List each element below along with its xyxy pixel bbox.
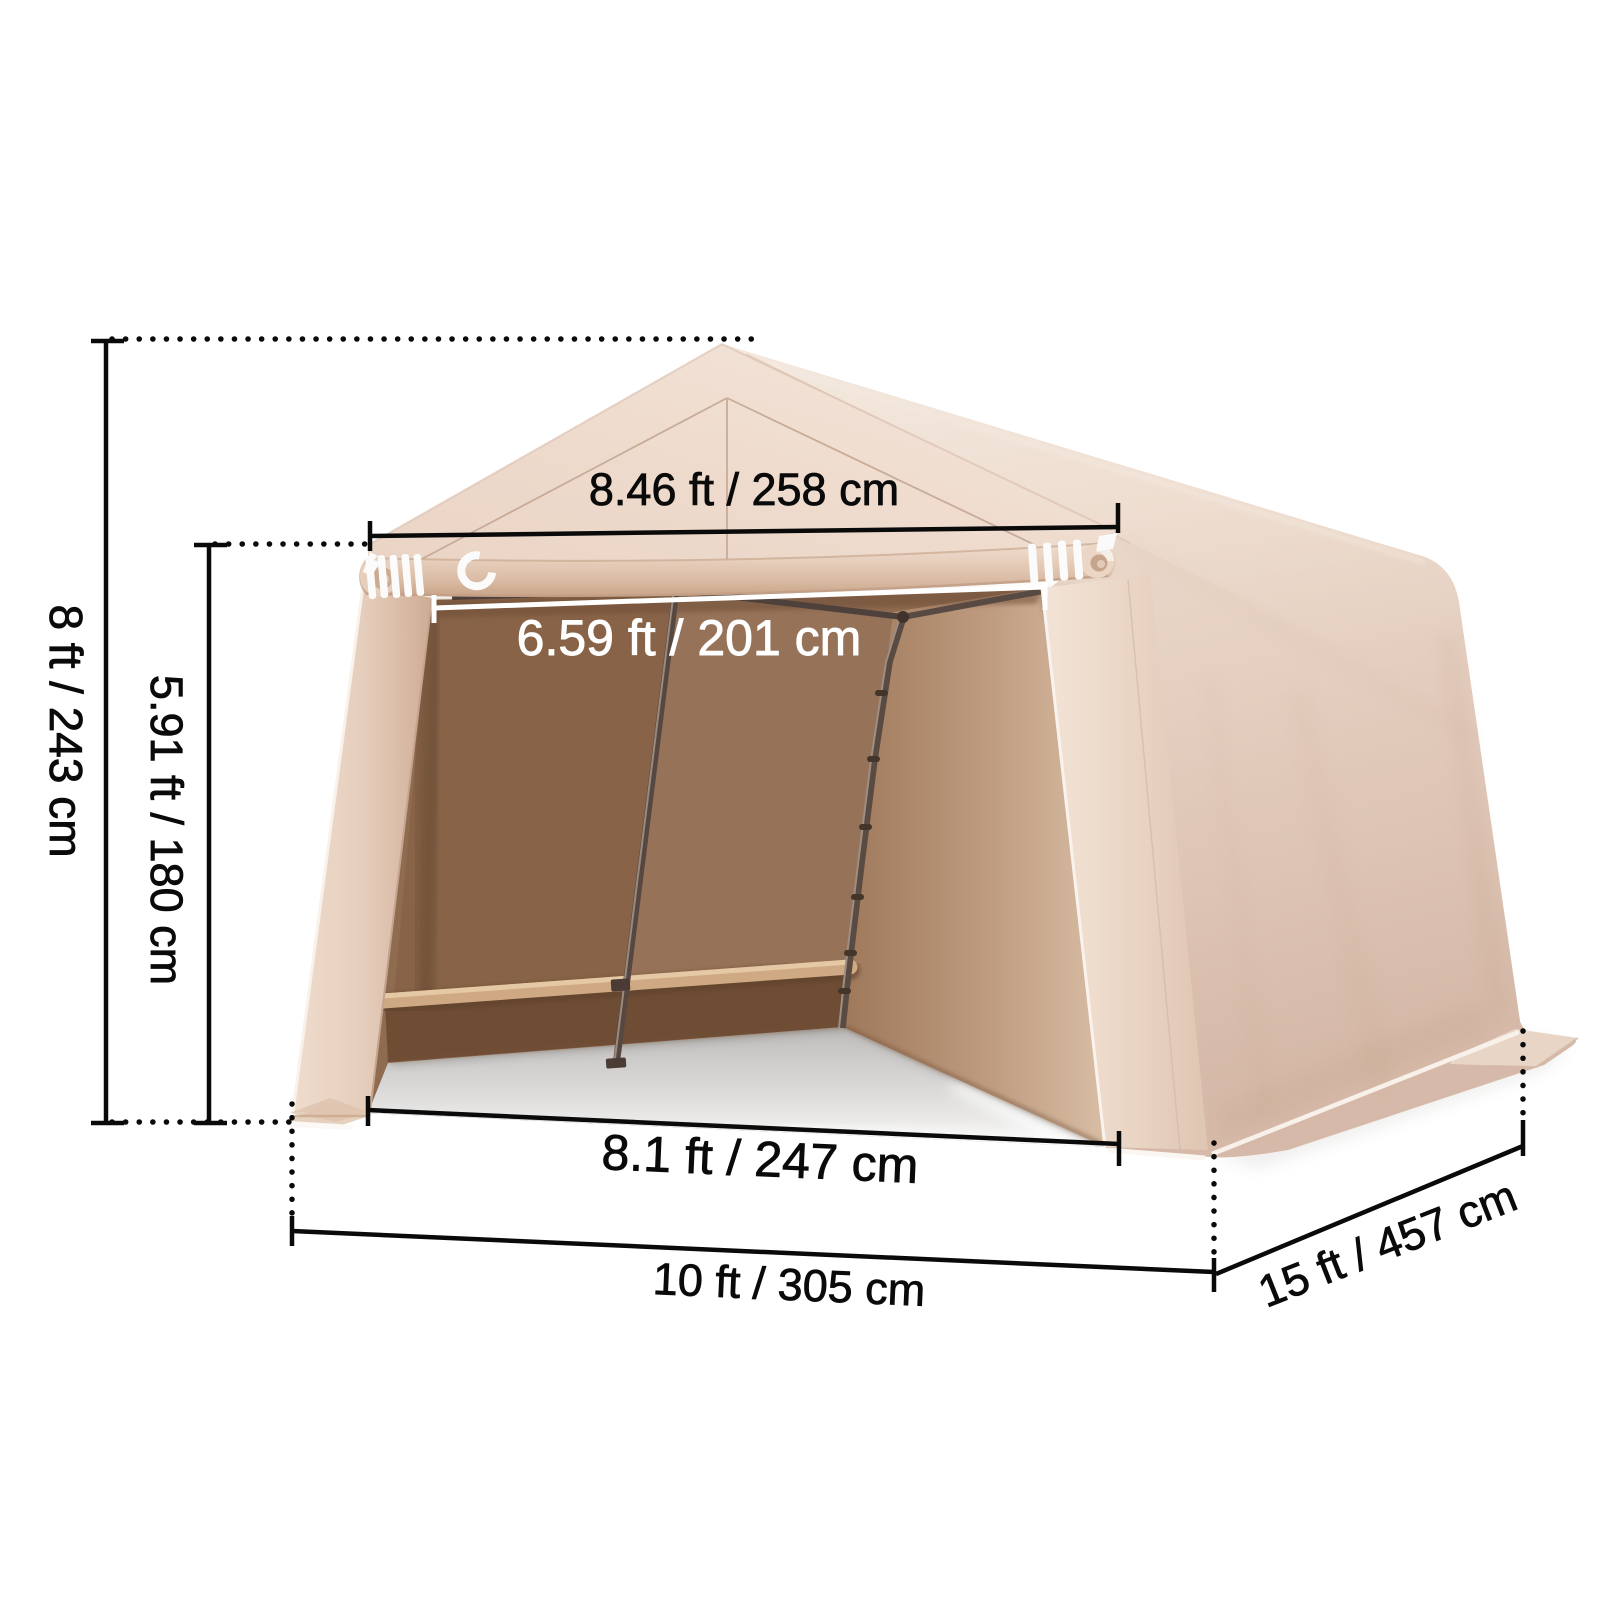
svg-text:6.59 ft / 201 cm: 6.59 ft / 201 cm [517, 610, 862, 666]
svg-text:5.91 ft / 180 cm: 5.91 ft / 180 cm [141, 675, 192, 985]
svg-text:8 ft / 243 cm: 8 ft / 243 cm [40, 604, 92, 857]
svg-text:8.46 ft / 258 cm: 8.46 ft / 258 cm [589, 464, 899, 515]
